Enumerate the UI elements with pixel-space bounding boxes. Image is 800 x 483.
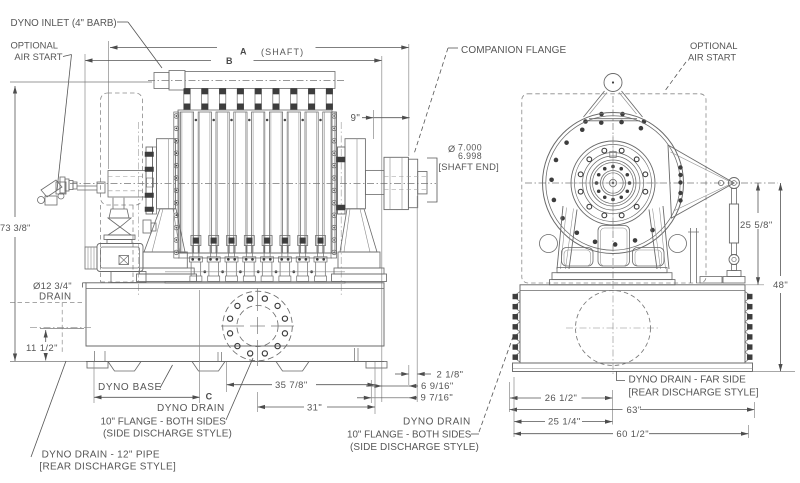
svg-text:9": 9"	[351, 113, 361, 124]
svg-text:DYNO INLET (4" BARB): DYNO INLET (4" BARB)	[11, 18, 117, 29]
svg-text:B: B	[226, 56, 233, 66]
svg-text:10" FLANGE - BOTH SIDES: 10" FLANGE - BOTH SIDES	[347, 430, 472, 441]
svg-text:A: A	[240, 47, 247, 57]
svg-text:11 1/2": 11 1/2"	[26, 343, 58, 354]
svg-text:48": 48"	[773, 280, 788, 291]
svg-text:COMPANION FLANGE: COMPANION FLANGE	[461, 45, 567, 56]
svg-text:[REAR DISCHARGE STYLE]: [REAR DISCHARGE STYLE]	[39, 462, 176, 473]
svg-text:25 1/4": 25 1/4"	[548, 417, 581, 428]
svg-text:73 3/8": 73 3/8"	[0, 223, 31, 233]
svg-text:26 1/2": 26 1/2"	[545, 393, 578, 404]
svg-text:[SHAFT END]: [SHAFT END]	[439, 161, 499, 172]
svg-text:9 7/16": 9 7/16"	[421, 393, 454, 404]
svg-text:(SIDE DISCHARGE STYLE): (SIDE DISCHARGE STYLE)	[350, 442, 479, 453]
svg-text:OPTIONAL: OPTIONAL	[11, 40, 58, 51]
svg-text:(SHAFT): (SHAFT)	[261, 47, 304, 57]
svg-text:AIR START: AIR START	[14, 51, 62, 62]
svg-text:[REAR DISCHARGE STYLE]: [REAR DISCHARGE STYLE]	[629, 388, 759, 399]
svg-text:AIR START: AIR START	[688, 52, 736, 63]
svg-text:63": 63"	[627, 405, 642, 416]
svg-text:60 1/2": 60 1/2"	[616, 429, 649, 440]
svg-text:DYNO DRAIN - FAR SIDE: DYNO DRAIN - FAR SIDE	[629, 375, 747, 386]
svg-text:Ø: Ø	[448, 144, 456, 154]
svg-text:DYNO BASE: DYNO BASE	[98, 382, 162, 393]
svg-text:6 9/16": 6 9/16"	[421, 381, 454, 392]
svg-text:31": 31"	[307, 402, 322, 413]
svg-text:C: C	[206, 392, 213, 402]
svg-text:OPTIONAL: OPTIONAL	[690, 40, 737, 51]
svg-text:35 7/8": 35 7/8"	[275, 380, 308, 391]
svg-text:DYNO DRAIN - 12" PIPE: DYNO DRAIN - 12" PIPE	[42, 450, 160, 461]
svg-text:Ø12 3/4": Ø12 3/4"	[33, 281, 72, 292]
svg-text:25 5/8": 25 5/8"	[740, 220, 773, 231]
svg-text:DRAIN: DRAIN	[39, 292, 71, 303]
svg-text:10" FLANGE - BOTH SIDES: 10" FLANGE - BOTH SIDES	[101, 417, 227, 428]
svg-text:DYNO DRAIN: DYNO DRAIN	[403, 417, 471, 428]
svg-text:(SIDE DISCHARGE STYLE): (SIDE DISCHARGE STYLE)	[103, 429, 232, 440]
svg-text:2 1/8": 2 1/8"	[437, 370, 464, 381]
svg-text:DYNO DRAIN: DYNO DRAIN	[157, 403, 225, 414]
svg-text:6.998: 6.998	[458, 151, 482, 161]
